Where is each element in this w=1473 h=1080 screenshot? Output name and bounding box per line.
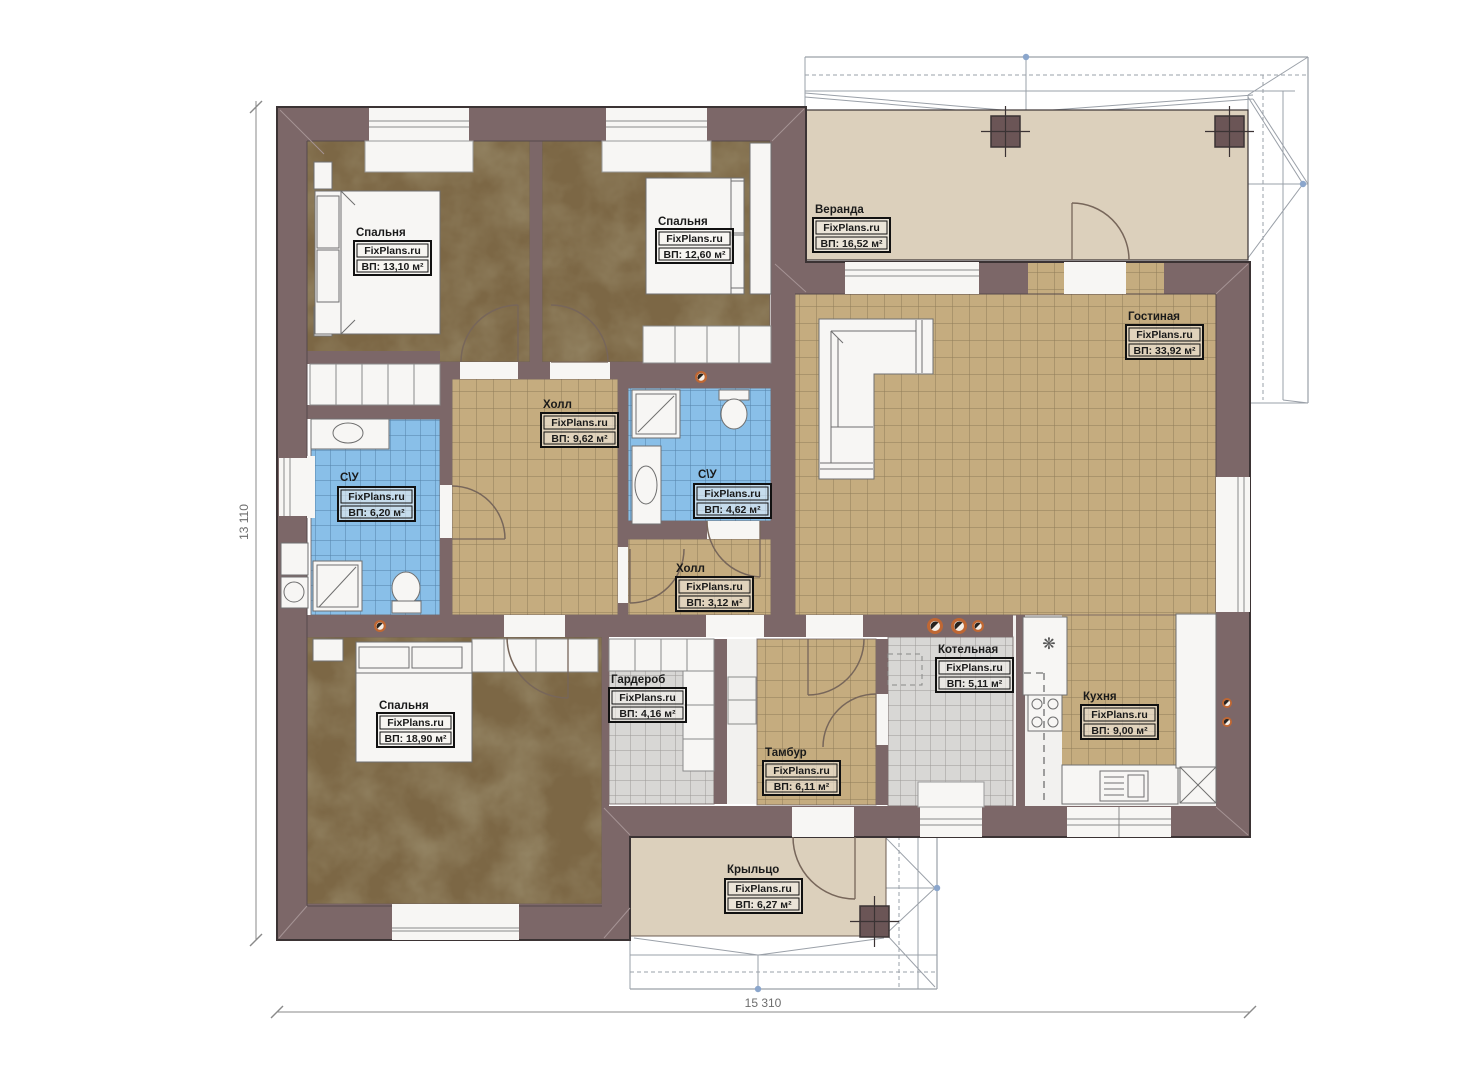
svg-text:ВП: 33,92 м²: ВП: 33,92 м² — [1133, 345, 1196, 357]
svg-text:Спальня: Спальня — [356, 227, 406, 239]
svg-text:Холл: Холл — [543, 399, 572, 411]
svg-text:С\У: С\У — [340, 472, 360, 484]
svg-text:ВП: 18,90 м²: ВП: 18,90 м² — [384, 733, 447, 745]
svg-text:FixPlans.ru: FixPlans.ru — [773, 765, 830, 777]
svg-text:ВП: 4,16 м²: ВП: 4,16 м² — [619, 708, 676, 720]
svg-text:FixPlans.ru: FixPlans.ru — [823, 222, 880, 234]
svg-text:15 310: 15 310 — [745, 996, 782, 1010]
svg-text:13 110: 13 110 — [237, 504, 251, 540]
svg-text:ВП: 3,12 м²: ВП: 3,12 м² — [686, 597, 743, 609]
svg-text:Гардероб: Гардероб — [611, 674, 665, 686]
svg-text:FixPlans.ru: FixPlans.ru — [387, 717, 444, 729]
svg-text:Спальня: Спальня — [379, 700, 429, 712]
svg-text:ВП: 16,52 м²: ВП: 16,52 м² — [820, 238, 883, 250]
svg-text:FixPlans.ru: FixPlans.ru — [946, 662, 1003, 674]
svg-text:FixPlans.ru: FixPlans.ru — [704, 488, 761, 500]
svg-text:Кухня: Кухня — [1083, 691, 1117, 703]
svg-text:Холл: Холл — [676, 563, 705, 575]
svg-text:ВП: 9,62 м²: ВП: 9,62 м² — [551, 433, 608, 445]
svg-text:ВП: 6,11 м²: ВП: 6,11 м² — [774, 781, 830, 793]
svg-text:ВП: 6,27 м²: ВП: 6,27 м² — [735, 899, 792, 911]
svg-text:FixPlans.ru: FixPlans.ru — [619, 692, 676, 704]
svg-text:С\У: С\У — [698, 469, 718, 481]
svg-text:Веранда: Веранда — [815, 204, 864, 216]
svg-text:FixPlans.ru: FixPlans.ru — [364, 245, 421, 257]
svg-text:Котельная: Котельная — [938, 644, 998, 656]
svg-text:ВП: 13,10 м²: ВП: 13,10 м² — [361, 261, 424, 273]
svg-text:ВП: 12,60 м²: ВП: 12,60 м² — [663, 249, 726, 261]
svg-text:FixPlans.ru: FixPlans.ru — [686, 581, 743, 593]
svg-text:ВП: 6,20 м²: ВП: 6,20 м² — [348, 507, 405, 519]
svg-text:Тамбур: Тамбур — [765, 747, 807, 759]
svg-text:Гостиная: Гостиная — [1128, 311, 1180, 323]
svg-text:ВП: 4,62 м²: ВП: 4,62 м² — [704, 504, 761, 516]
svg-text:❋: ❋ — [1042, 636, 1055, 653]
svg-text:Спальня: Спальня — [658, 216, 708, 228]
svg-text:FixPlans.ru: FixPlans.ru — [1136, 329, 1193, 341]
svg-text:FixPlans.ru: FixPlans.ru — [1091, 709, 1148, 721]
svg-text:FixPlans.ru: FixPlans.ru — [666, 233, 723, 245]
svg-text:FixPlans.ru: FixPlans.ru — [551, 417, 608, 429]
svg-text:FixPlans.ru: FixPlans.ru — [348, 491, 405, 503]
svg-text:Крыльцо: Крыльцо — [727, 864, 779, 876]
svg-text:FixPlans.ru: FixPlans.ru — [735, 883, 792, 895]
svg-text:ВП: 9,00 м²: ВП: 9,00 м² — [1091, 725, 1148, 737]
svg-text:ВП: 5,11 м²: ВП: 5,11 м² — [947, 678, 1003, 690]
